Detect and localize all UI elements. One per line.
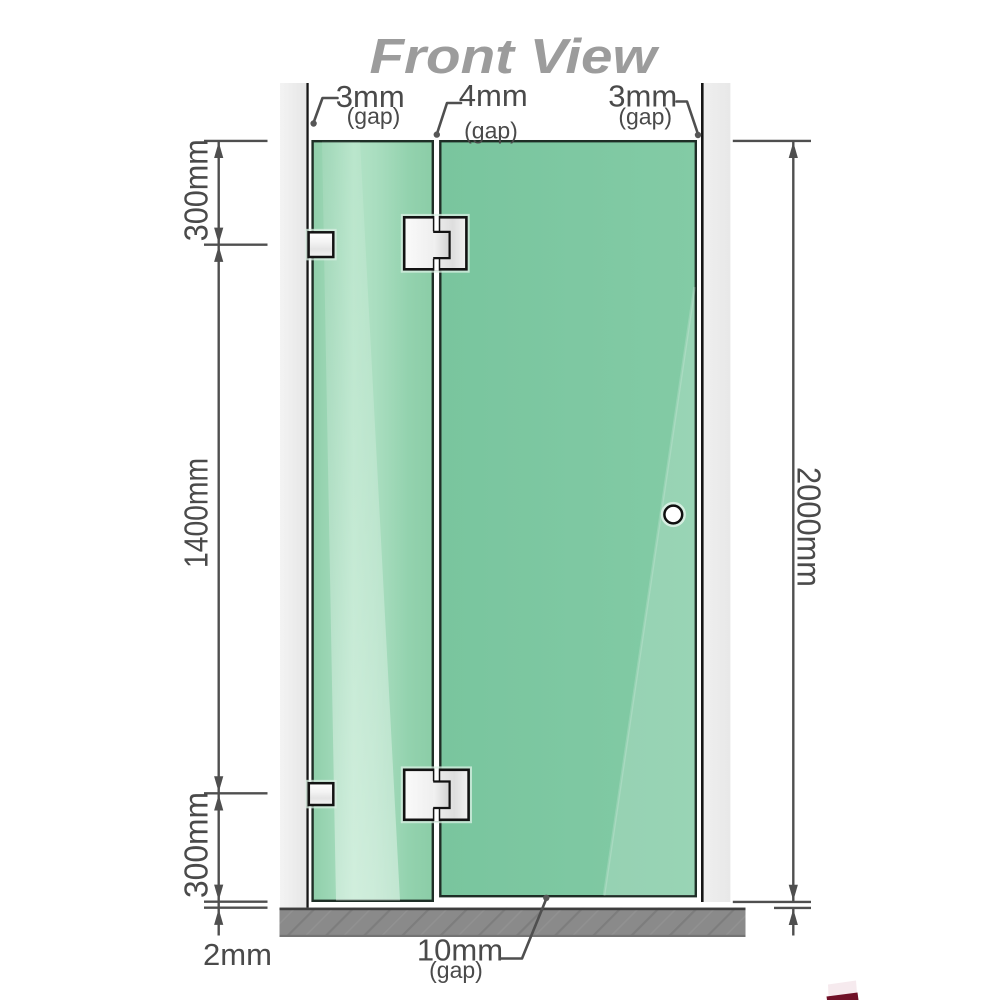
svg-text:4mm: 4mm (459, 78, 528, 113)
svg-text:(gap): (gap) (618, 104, 672, 130)
svg-text:300mm: 300mm (178, 139, 215, 241)
svg-text:(gap): (gap) (464, 118, 518, 144)
svg-text:300mm: 300mm (178, 792, 215, 898)
svg-text:2000mm: 2000mm (791, 467, 828, 587)
svg-text:1400mm: 1400mm (178, 458, 215, 568)
svg-text:(gap): (gap) (429, 957, 483, 983)
svg-text:Front View: Front View (370, 30, 660, 84)
svg-text:(gap): (gap) (347, 103, 401, 129)
svg-text:2mm: 2mm (203, 937, 272, 972)
